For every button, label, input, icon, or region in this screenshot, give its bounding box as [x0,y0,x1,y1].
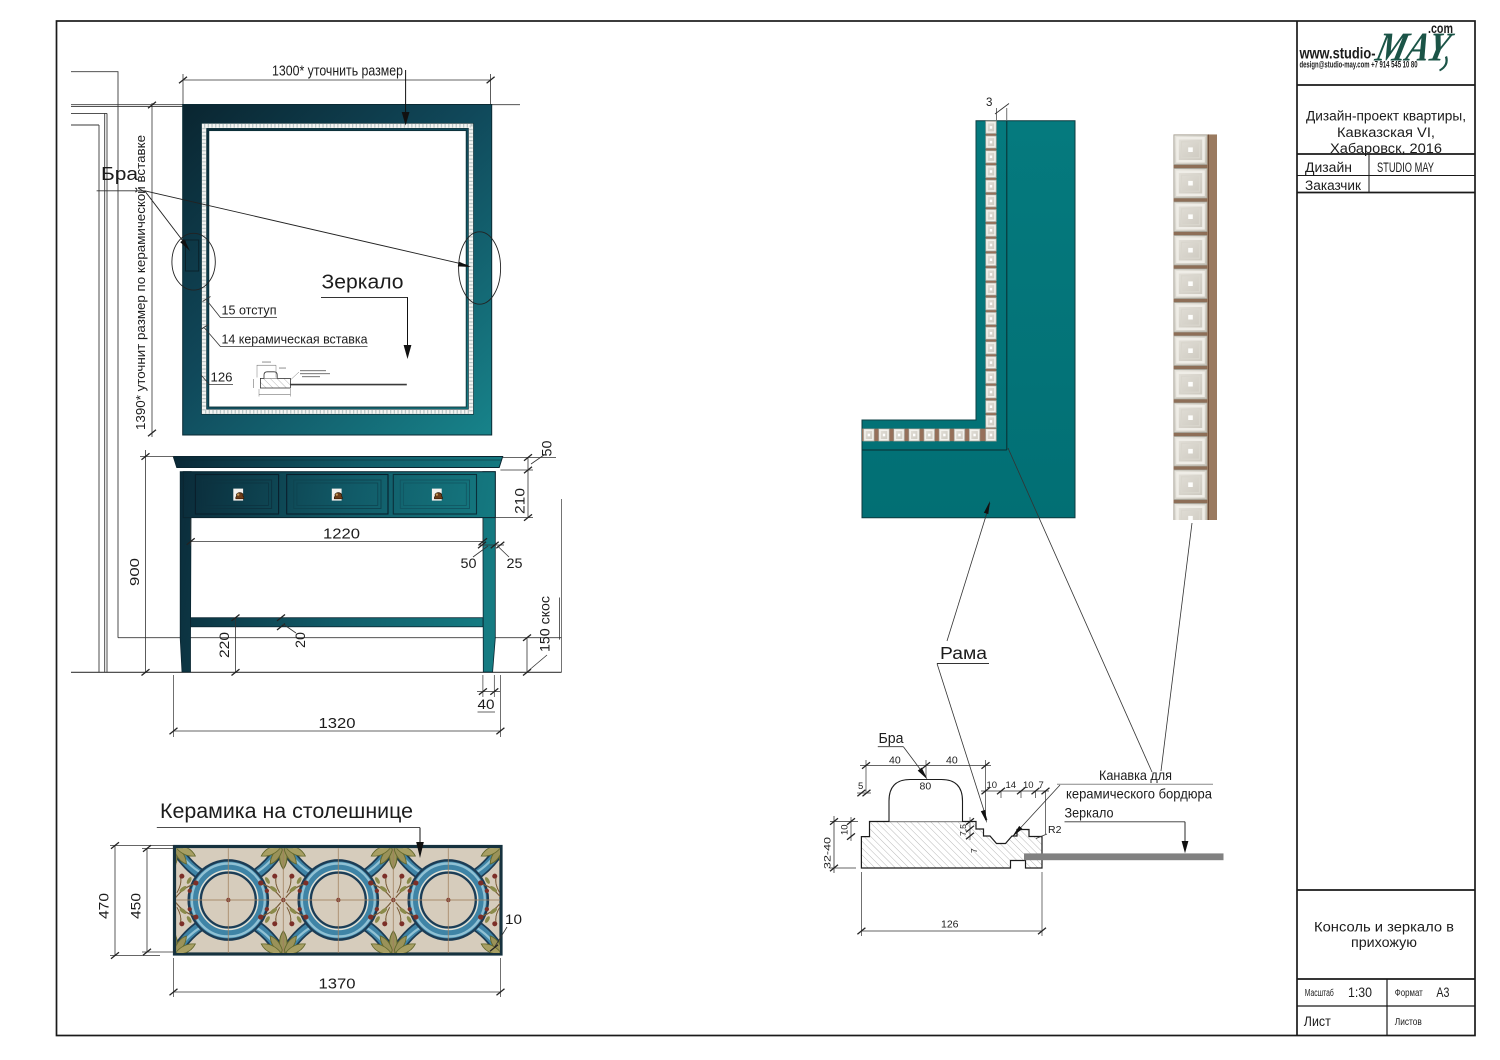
svg-text:10: 10 [840,824,851,835]
svg-text:126: 126 [941,919,959,931]
svg-text:Канавка для: Канавка для [1099,767,1172,783]
svg-text:40: 40 [946,755,958,767]
svg-text:Дизайн-проект квартиры,: Дизайн-проект квартиры, [1306,109,1466,124]
svg-text:10: 10 [505,912,522,927]
svg-text:Листов: Листов [1395,1016,1422,1028]
svg-text:Зеркало: Зеркало [322,272,404,294]
svg-text:220: 220 [217,632,232,658]
svg-text:Консоль и зеркало в: Консоль и зеркало в [1314,920,1454,935]
svg-text:7,5: 7,5 [958,824,968,836]
svg-text:80: 80 [920,781,932,793]
svg-text:Лист: Лист [1304,1014,1331,1029]
svg-text:Заказчик: Заказчик [1305,178,1361,193]
svg-text:470: 470 [97,893,112,919]
svg-text:.com: .com [1428,21,1453,36]
svg-text:design@studio-may.com +7 914: design@studio-may.com +7 914 545 10 80 [1300,60,1418,71]
svg-text:7: 7 [1039,780,1044,791]
svg-text:10: 10 [1023,780,1034,791]
svg-text:Бра: Бра [879,730,905,747]
svg-text:15 отступ: 15 отступ [222,303,277,318]
svg-text:126: 126 [211,370,233,385]
svg-text:1320: 1320 [319,716,356,732]
svg-text:3: 3 [986,97,992,109]
svg-text:Хабаровск, 2016: Хабаровск, 2016 [1330,141,1442,156]
svg-text:Бра: Бра [101,164,139,184]
svg-text:150 скос: 150 скос [538,596,553,652]
svg-text:1370: 1370 [319,977,356,993]
svg-text:210: 210 [513,488,528,514]
svg-text:А3: А3 [1436,985,1449,1000]
svg-text:900: 900 [127,558,142,586]
svg-text:25: 25 [507,556,523,571]
svg-text:450: 450 [129,893,144,919]
svg-text:Масштаб: Масштаб [1305,987,1334,999]
svg-text:Дизайн: Дизайн [1305,160,1352,175]
svg-text:14: 14 [1006,780,1017,791]
svg-text:Керамика на столешнице: Керамика на столешнице [160,799,413,823]
svg-text:STUDIO MAY: STUDIO MAY [1377,160,1434,175]
svg-text:40: 40 [889,755,901,767]
svg-text:керамического бордюра: керамического бордюра [1066,786,1212,802]
svg-text:Формат: Формат [1395,988,1423,999]
svg-text:50: 50 [540,441,555,457]
svg-text:40: 40 [478,697,495,712]
svg-text:20: 20 [293,632,308,648]
svg-text:1:30: 1:30 [1348,985,1372,1000]
svg-text:1300* уточнить размер: 1300* уточнить размер [272,63,403,80]
svg-text:Кавказская VI,: Кавказская VI, [1337,125,1435,140]
svg-text:32-40: 32-40 [823,837,834,869]
svg-text:Зеркало: Зеркало [1065,805,1114,821]
svg-text:7: 7 [969,848,979,853]
svg-text:прихожую: прихожую [1351,935,1417,950]
svg-text:50: 50 [461,556,477,571]
svg-text:10: 10 [987,780,998,791]
svg-text:R2: R2 [1048,824,1062,836]
svg-text:Рама: Рама [940,643,987,663]
svg-text:1220: 1220 [323,527,360,543]
svg-text:14 керамическая вставка: 14 керамическая вставка [222,332,369,347]
svg-text:5: 5 [858,781,863,792]
